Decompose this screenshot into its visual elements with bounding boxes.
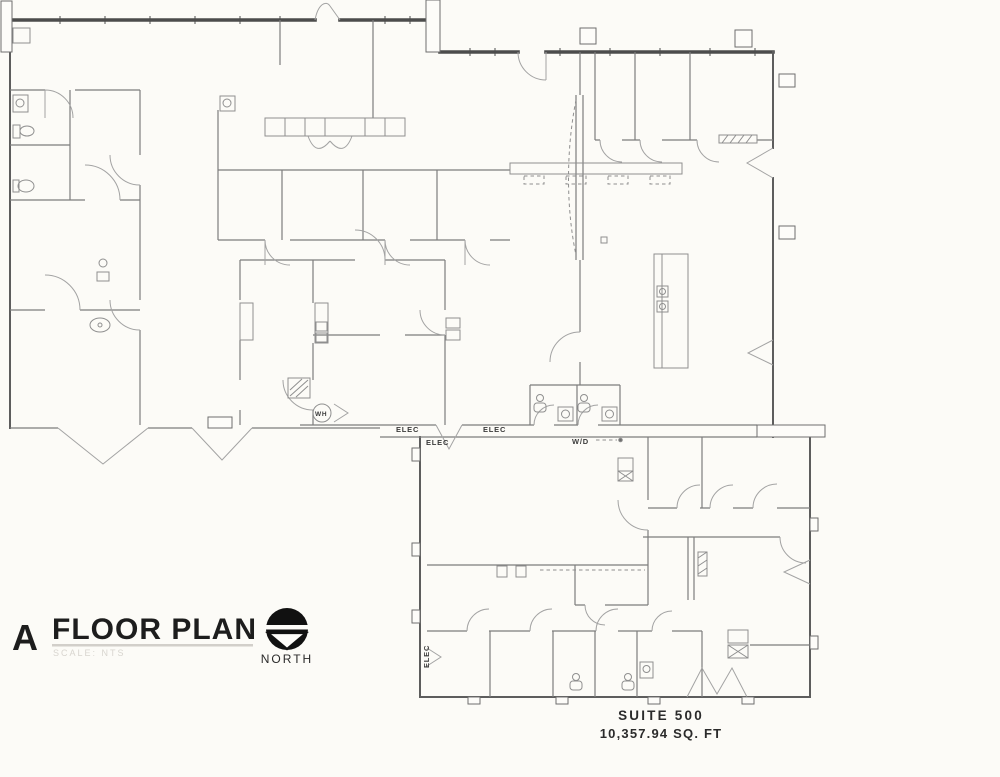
suite-name: SUITE 500 (618, 708, 704, 723)
plan-label-elec: ELEC (422, 645, 431, 668)
plan-label-wd: W/D (572, 437, 589, 446)
floor-plan-sheet: ELECELECELECW/DELECWH A FLOOR PLAN SCALE… (0, 0, 1000, 777)
columns-pilasters (1, 0, 825, 704)
plan-title: FLOOR PLAN (52, 613, 257, 646)
title-underline (52, 644, 253, 647)
suite-area: 10,357.94 SQ. FT (600, 726, 723, 741)
north-arrow-icon (265, 608, 309, 650)
north-label: NORTH (261, 652, 313, 666)
plan-label-elec: ELEC (396, 425, 419, 434)
interior-walls (10, 20, 810, 697)
suite-info: SUITE 500 10,357.94 SQ. FT (600, 708, 723, 741)
title-block: A FLOOR PLAN SCALE: NTS NORTH (12, 608, 313, 666)
plan-label-wh: WH (315, 411, 327, 418)
exterior-top-walls (10, 20, 773, 52)
plan-label-elec: ELEC (483, 425, 506, 434)
plan-labels: ELECELECELECW/DELECWH (315, 411, 589, 668)
door-swings (45, 3, 810, 697)
scale-note: SCALE: NTS (53, 648, 126, 658)
fixtures-casework (13, 28, 757, 690)
sheet-letter: A (12, 617, 38, 658)
plan-label-elec: ELEC (426, 438, 449, 447)
wall-ticks (60, 16, 755, 56)
floor-plan-drawing: ELECELECELECW/DELECWH A FLOOR PLAN SCALE… (0, 0, 1000, 777)
